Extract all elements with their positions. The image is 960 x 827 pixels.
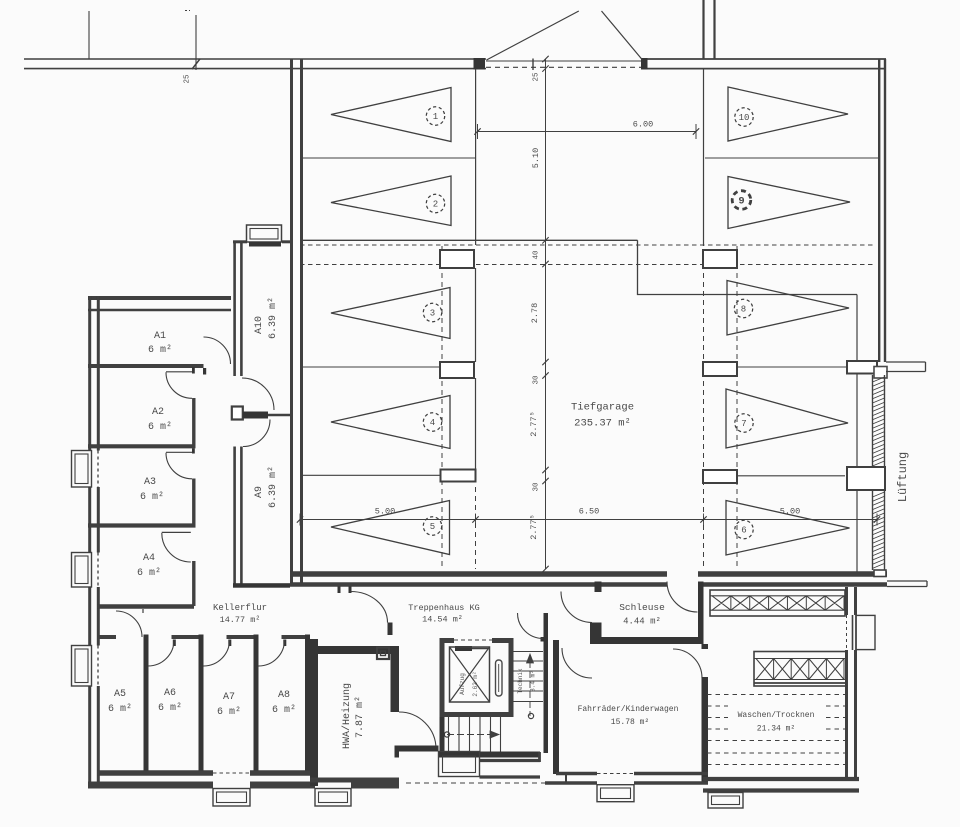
svg-text:A9: A9 — [254, 486, 265, 498]
svg-text:30: 30 — [533, 482, 541, 492]
svg-text:A8: A8 — [278, 690, 290, 701]
svg-text:15.78 m²: 15.78 m² — [611, 718, 649, 727]
svg-text:10: 10 — [739, 113, 750, 123]
svg-text:6 m²: 6 m² — [140, 492, 164, 503]
svg-text:6 m²: 6 m² — [108, 704, 132, 715]
svg-text:A4: A4 — [143, 553, 155, 564]
svg-text:A5: A5 — [114, 689, 126, 700]
svg-text:2: 2 — [433, 200, 438, 210]
svg-text:3: 3 — [430, 309, 435, 319]
svg-text:3.4 m²: 3.4 m² — [530, 670, 537, 692]
svg-text:6 m²: 6 m² — [148, 422, 172, 433]
svg-text:30: 30 — [533, 375, 541, 385]
svg-text:14.77 m²: 14.77 m² — [220, 615, 261, 625]
svg-text:A10: A10 — [254, 316, 265, 334]
svg-text:A2: A2 — [152, 407, 164, 418]
svg-text:6 m²: 6 m² — [158, 703, 182, 714]
svg-text:Aufzug: Aufzug — [459, 673, 466, 695]
svg-text:HWA/Heizung: HWA/Heizung — [341, 683, 353, 749]
svg-text:6.50: 6.50 — [579, 507, 599, 517]
svg-text:A1: A1 — [154, 331, 166, 342]
svg-text:5: 5 — [430, 522, 435, 532]
svg-text:6.39 m²: 6.39 m² — [268, 297, 279, 339]
svg-text:2.62 m²: 2.62 m² — [472, 671, 479, 696]
svg-text:A7: A7 — [223, 692, 235, 703]
svg-text:5.00: 5.00 — [780, 507, 800, 517]
svg-text:Tiefgarage: Tiefgarage — [571, 402, 634, 414]
svg-text:7.87 m²: 7.87 m² — [355, 696, 366, 738]
svg-text:14.54 m²: 14.54 m² — [422, 615, 463, 625]
svg-text:6 m²: 6 m² — [272, 705, 296, 716]
svg-text:2.77⁵: 2.77⁵ — [529, 411, 539, 437]
svg-text:6 m²: 6 m² — [217, 707, 241, 718]
svg-text:Waschen/Trocknen: Waschen/Trocknen — [738, 711, 815, 720]
svg-text:21.34 m²: 21.34 m² — [757, 725, 795, 734]
svg-text:5.10: 5.10 — [531, 148, 541, 168]
svg-text:25: 25 — [184, 74, 192, 84]
svg-text:5.00: 5.00 — [375, 507, 395, 517]
svg-text:9: 9 — [738, 196, 744, 208]
svg-text:6: 6 — [741, 526, 746, 536]
svg-text:6.00: 6.00 — [633, 120, 653, 130]
svg-text:235.37 m²: 235.37 m² — [574, 418, 631, 430]
svg-text:A6: A6 — [164, 688, 176, 699]
svg-text:40: 40 — [533, 250, 541, 260]
svg-text:1: 1 — [433, 112, 438, 122]
svg-text:Treppenhaus KG: Treppenhaus KG — [408, 603, 479, 613]
svg-text:6 m²: 6 m² — [148, 345, 172, 356]
svg-text:6.39 m²: 6.39 m² — [268, 466, 279, 508]
svg-text:Technik: Technik — [517, 668, 524, 694]
svg-text:A3: A3 — [144, 477, 156, 488]
svg-text:7: 7 — [741, 419, 746, 429]
svg-text:25: 25 — [533, 72, 541, 82]
svg-text:Kellerflur: Kellerflur — [213, 603, 267, 613]
svg-text:Schleuse: Schleuse — [619, 602, 665, 613]
svg-text:6 m²: 6 m² — [137, 568, 161, 579]
svg-text:8: 8 — [741, 305, 746, 315]
svg-text:2.78: 2.78 — [530, 303, 540, 323]
svg-text:2.77⁵: 2.77⁵ — [529, 514, 539, 540]
svg-text:Lüftung: Lüftung — [896, 452, 910, 502]
svg-text:Fahrräder/Kinderwagen: Fahrräder/Kinderwagen — [578, 705, 679, 714]
svg-text:4.44 m²: 4.44 m² — [623, 617, 661, 627]
svg-text:4: 4 — [430, 418, 435, 428]
